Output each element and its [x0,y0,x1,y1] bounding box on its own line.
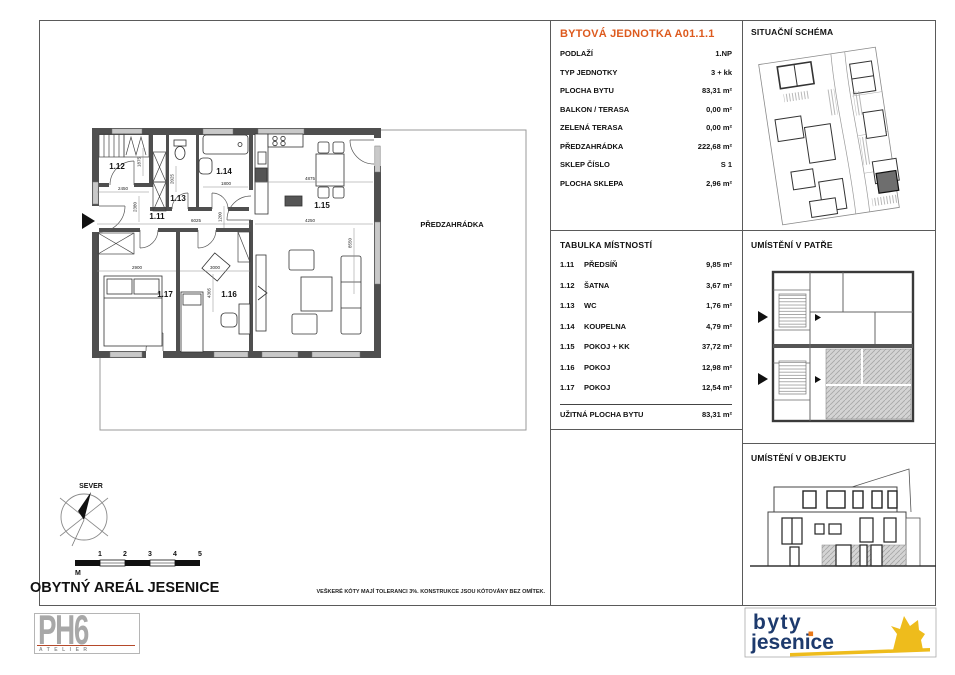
info-row: PODLAŽÍ1.NP [560,49,732,58]
pillow [107,279,132,294]
sofa [341,256,361,334]
info-value: 0,00 m² [706,123,732,132]
room-table-panel: TABULKA MÍSTNOSTÍ 1.11PŘEDSÍŇ9,85 m² 1.1… [551,231,741,429]
room-area: 4,79 m² [706,322,732,331]
info-value: 222,68 m² [698,142,732,151]
dim-3000: 3000 [210,265,221,270]
scale-mark-5: 5 [198,551,202,558]
info-value: 1.NP [715,49,732,58]
architect-logo-line [37,645,135,647]
site-buildings [767,52,903,221]
situation-panel-title: SITUAČNÍ SCHÉMA [751,27,833,37]
tv-board [256,255,266,331]
dim-4875: 4875 [305,176,316,181]
pillow [183,294,201,305]
table-row: 1.14KOUPELNA4,79 m² [560,322,732,331]
info-row: SKLEP ČÍSLOS 1 [560,160,732,169]
info-value: 83,31 m² [702,86,732,95]
room-num: 1.16 [560,363,584,372]
toilet-bowl [175,147,185,160]
room-name: ŠATNA [584,281,706,290]
developer-logo: byty jesenice [745,608,936,657]
room-area: 3,67 m² [706,281,732,290]
info-label: PLOCHA SKLEPA [560,179,623,188]
room-area: 12,54 m² [702,383,732,392]
dining-chair [333,142,344,153]
desk [239,304,250,334]
total-label: UŽITNÁ PLOCHA BYTU [560,410,643,419]
disclaimer-text: VEŠKERÉ KÓTY MAJÍ TOLERANCI 3%. KONSTRUK… [285,589,545,595]
building-panel-title: UMÍSTĚNÍ V OBJEKTU [751,453,846,463]
compass: SEVER [60,483,108,546]
room-num: 1.11 [560,260,584,269]
info-row: PŘEDZAHRÁDKA222,68 m² [560,142,732,151]
room-num: 1.13 [560,301,584,310]
scale-numbers: 1 2 3 4 5 [98,551,202,558]
drawings-svg: 2450 2380 1875 2025 1800 6025 1200 4875 … [0,0,955,675]
table-row: 1.15POKOJ + KK37,72 m² [560,342,732,351]
scale-mark-1: 1 [98,551,102,558]
room-num: 1.15 [560,342,584,351]
room-name: POKOJ [584,383,702,392]
unit-info-panel: BYTOVÁ JEDNOTKA A01.1.1 PODLAŽÍ1.NP TYP … [551,21,741,229]
dim-1200: 1200 [218,211,223,222]
dim-1800: 1800 [221,181,232,186]
dim-4305: 4305 [207,287,212,298]
floorplan: 2450 2380 1875 2025 1800 6025 1200 4875 … [82,128,526,430]
table-row: 1.11PŘEDSÍŇ9,85 m² [560,260,732,269]
room-table-title: TABULKA MÍSTNOSTÍ [560,240,732,250]
furniture [104,134,361,352]
armchair [289,250,314,270]
info-label: SKLEP ČÍSLO [560,160,610,169]
dim-1875: 1875 [137,156,142,167]
scale-mark-4: 4 [173,551,177,558]
scale-mark-3: 3 [148,551,152,558]
architect-sub: ATELIER [39,647,92,653]
kitchen-island [285,196,302,206]
building-elevation [750,469,936,566]
room-label-1-17: 1.17 [157,290,173,299]
room-label-1-11: 1.11 [149,212,165,221]
table-row: 1.17POKOJ12,54 m² [560,383,732,392]
dim-2900: 2900 [132,265,143,270]
side-table [221,313,237,327]
room-label-1-13: 1.13 [170,194,186,203]
info-row: ZELENÁ TERASA0,00 m² [560,123,732,132]
kitchen-sink [258,152,266,164]
room-num: 1.14 [560,322,584,331]
pillow [134,279,159,294]
room-area: 1,76 m² [706,301,732,310]
logo-orange-dot [809,632,814,637]
dim-2380: 2380 [133,201,138,212]
info-value: 3 + kk [711,68,732,77]
compass-label: SEVER [79,483,103,490]
toilet-tank [174,140,186,146]
table-row: 1.12ŠATNA3,67 m² [560,281,732,290]
entry-arrow-top-icon [758,311,768,323]
architect-logo: PH6 ATELIER [34,613,140,654]
room-name: PŘEDSÍŇ [584,260,706,269]
info-label: PŘEDZAHRÁDKA [560,142,623,151]
coffee-table [301,277,332,311]
info-label: BALKON / TERASA [560,105,629,114]
room-label-1-14: 1.14 [216,167,232,176]
room-num: 1.17 [560,383,584,392]
site-plan [759,47,904,225]
floor-panel-title: UMÍSTĚNÍ V PATŘE [751,240,833,250]
dim-2025: 2025 [170,173,175,184]
scale-mark-2: 2 [123,551,127,558]
dim-4250: 4250 [305,218,316,223]
garden-label: PŘEDZAHRÁDKA [420,220,484,229]
dim-2450: 2450 [118,186,129,191]
total-value: 83,31 m² [702,410,732,419]
entry-arrow-bottom-icon [758,373,768,385]
bathroom-sink [199,158,212,174]
room-area: 37,72 m² [702,342,732,351]
room-area: 9,85 m² [706,260,732,269]
info-label: ZELENÁ TERASA [560,123,623,132]
room-num: 1.12 [560,281,584,290]
room-area: 12,98 m² [702,363,732,372]
info-row: TYP JEDNOTKY3 + kk [560,68,732,77]
stairs-top [779,294,806,327]
scale-unit: M [75,570,81,577]
dim-6025: 6025 [191,218,202,223]
room-label-1-15: 1.15 [314,201,330,210]
room-label-1-16: 1.16 [221,290,237,299]
drawing-sheet-page: 2450 2380 1875 2025 1800 6025 1200 4875 … [0,0,955,675]
dining-table [316,154,344,186]
scale-bar: 1 2 3 4 5 M [75,551,202,577]
table-row: 1.16POKOJ12,98 m² [560,363,732,372]
dining-chair [318,142,329,153]
room-name: POKOJ [584,363,702,372]
room-name: WC [584,301,706,310]
stairs-bottom [779,361,806,394]
info-row: PLOCHA BYTU83,31 m² [560,86,732,95]
info-row: PLOCHA SKLEPA2,96 m² [560,179,732,188]
room-name: KOUPELNA [584,322,706,331]
armchair [292,314,317,334]
table-total-row: UŽITNÁ PLOCHA BYTU83,31 m² [560,404,732,419]
logo-line2: jesenice [750,631,834,654]
info-label: PLOCHA BYTU [560,86,614,95]
unit-title: BYTOVÁ JEDNOTKA A01.1.1 [560,28,732,40]
dim-8550: 8550 [348,237,353,248]
info-label: PODLAŽÍ [560,49,593,58]
info-value: 2,96 m² [706,179,732,188]
dining-chair [318,187,329,198]
info-label: TYP JEDNOTKY [560,68,617,77]
project-title: OBYTNÝ AREÁL JESENICE [30,580,219,596]
room-label-1-12: 1.12 [109,162,125,171]
room-name: POKOJ + KK [584,342,702,351]
site-highlighted-building [876,171,899,194]
bathtub-drain [238,143,242,147]
dining-chair [333,187,344,198]
info-value: 0,00 m² [706,105,732,114]
floor-location-plan [758,272,913,421]
info-value: S 1 [721,160,732,169]
table-row: 1.13WC1,76 m² [560,301,732,310]
compass-needle-icon [78,492,91,520]
kitchen-appliance [255,168,267,182]
info-row: BALKON / TERASA0,00 m² [560,105,732,114]
